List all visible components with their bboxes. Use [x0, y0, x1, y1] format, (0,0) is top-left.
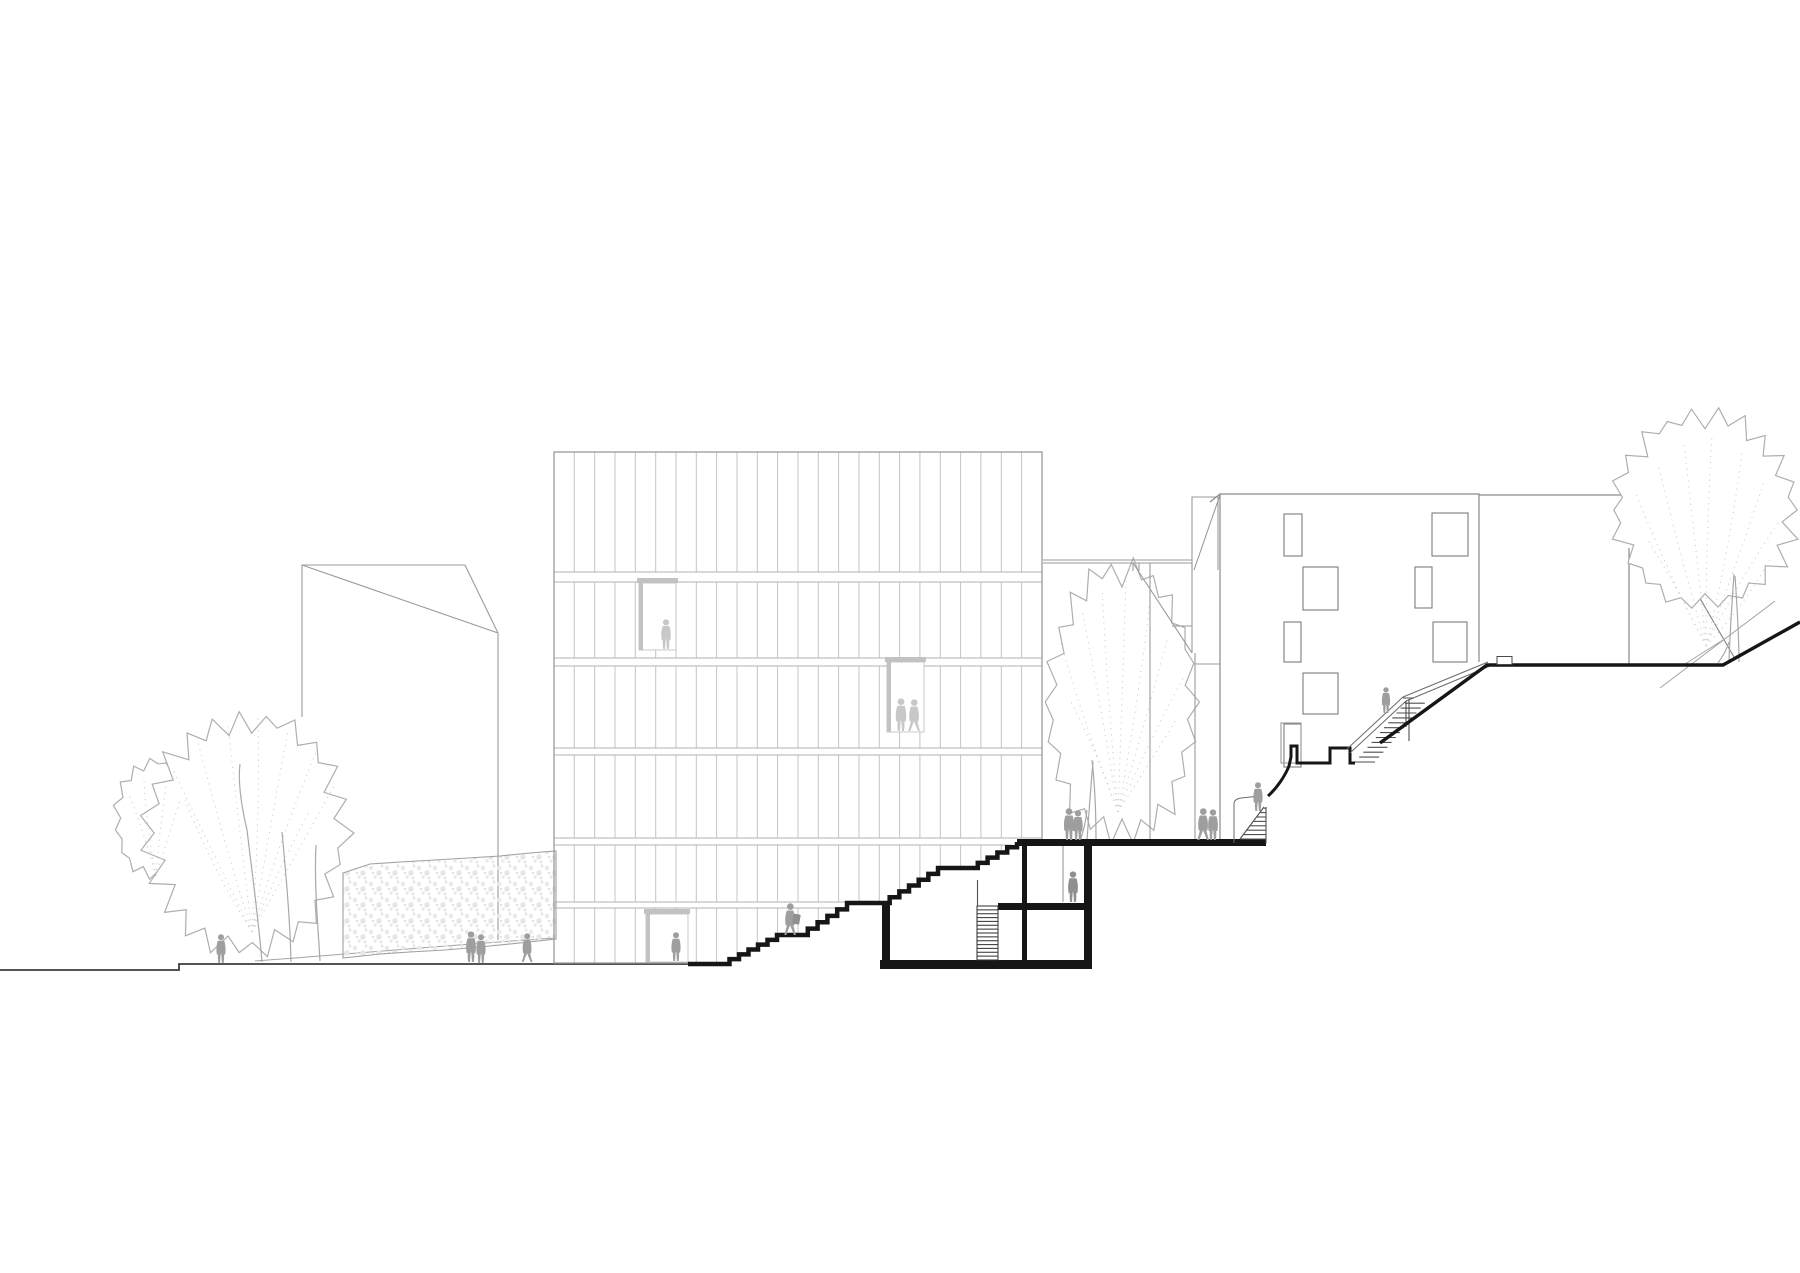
- upper-ground-cut: Upper street level ground cut: [1380, 622, 1800, 743]
- basement-wall: [998, 903, 1092, 910]
- window: [1284, 622, 1301, 662]
- courtyard-tree-canopy: [1045, 558, 1199, 844]
- right-tree: Tree on upper slope: [1612, 408, 1798, 663]
- drawing-canvas: Site section: new building with slatted …: [0, 0, 1800, 1273]
- window: [1303, 673, 1338, 714]
- deck-end-stair: [1234, 796, 1266, 843]
- basement-wall: [880, 960, 1092, 969]
- courtyard-tree: Courtyard tree behind plaza: [1045, 558, 1199, 844]
- middle-building-stair-tower: [1192, 495, 1220, 570]
- middle-building-eave: [1043, 560, 1192, 563]
- basement-stair-hatch: [977, 906, 998, 960]
- right-tree-canopy: [1612, 408, 1798, 608]
- section-drawing: Site section: new building with slatted …: [0, 0, 1800, 1273]
- hillside-stair-railings: [1347, 662, 1490, 753]
- person-figure: [1208, 809, 1218, 840]
- left-trees: Street trees (left): [113, 712, 354, 962]
- upper-ground-curb-notch: [1497, 657, 1512, 665]
- plaza-deck-slab: [1017, 839, 1266, 846]
- window: [1415, 567, 1432, 608]
- window: [1284, 514, 1302, 556]
- person-figure: [1382, 687, 1390, 713]
- left-ground-line: [0, 964, 688, 970]
- person-figure: [1197, 808, 1209, 840]
- basement-wall: [882, 901, 890, 963]
- window: [1433, 622, 1467, 662]
- person-figure: [1253, 782, 1262, 811]
- window: [1432, 513, 1468, 556]
- upper-ground-line: [1380, 622, 1800, 743]
- left-building-roof-diagonal: [302, 565, 498, 633]
- facade-door-ground: [644, 909, 690, 962]
- window: [1303, 567, 1338, 610]
- facade-door-level2: [637, 578, 678, 650]
- hillside-stair-treads: [1355, 703, 1425, 762]
- person-figure: [1064, 808, 1074, 840]
